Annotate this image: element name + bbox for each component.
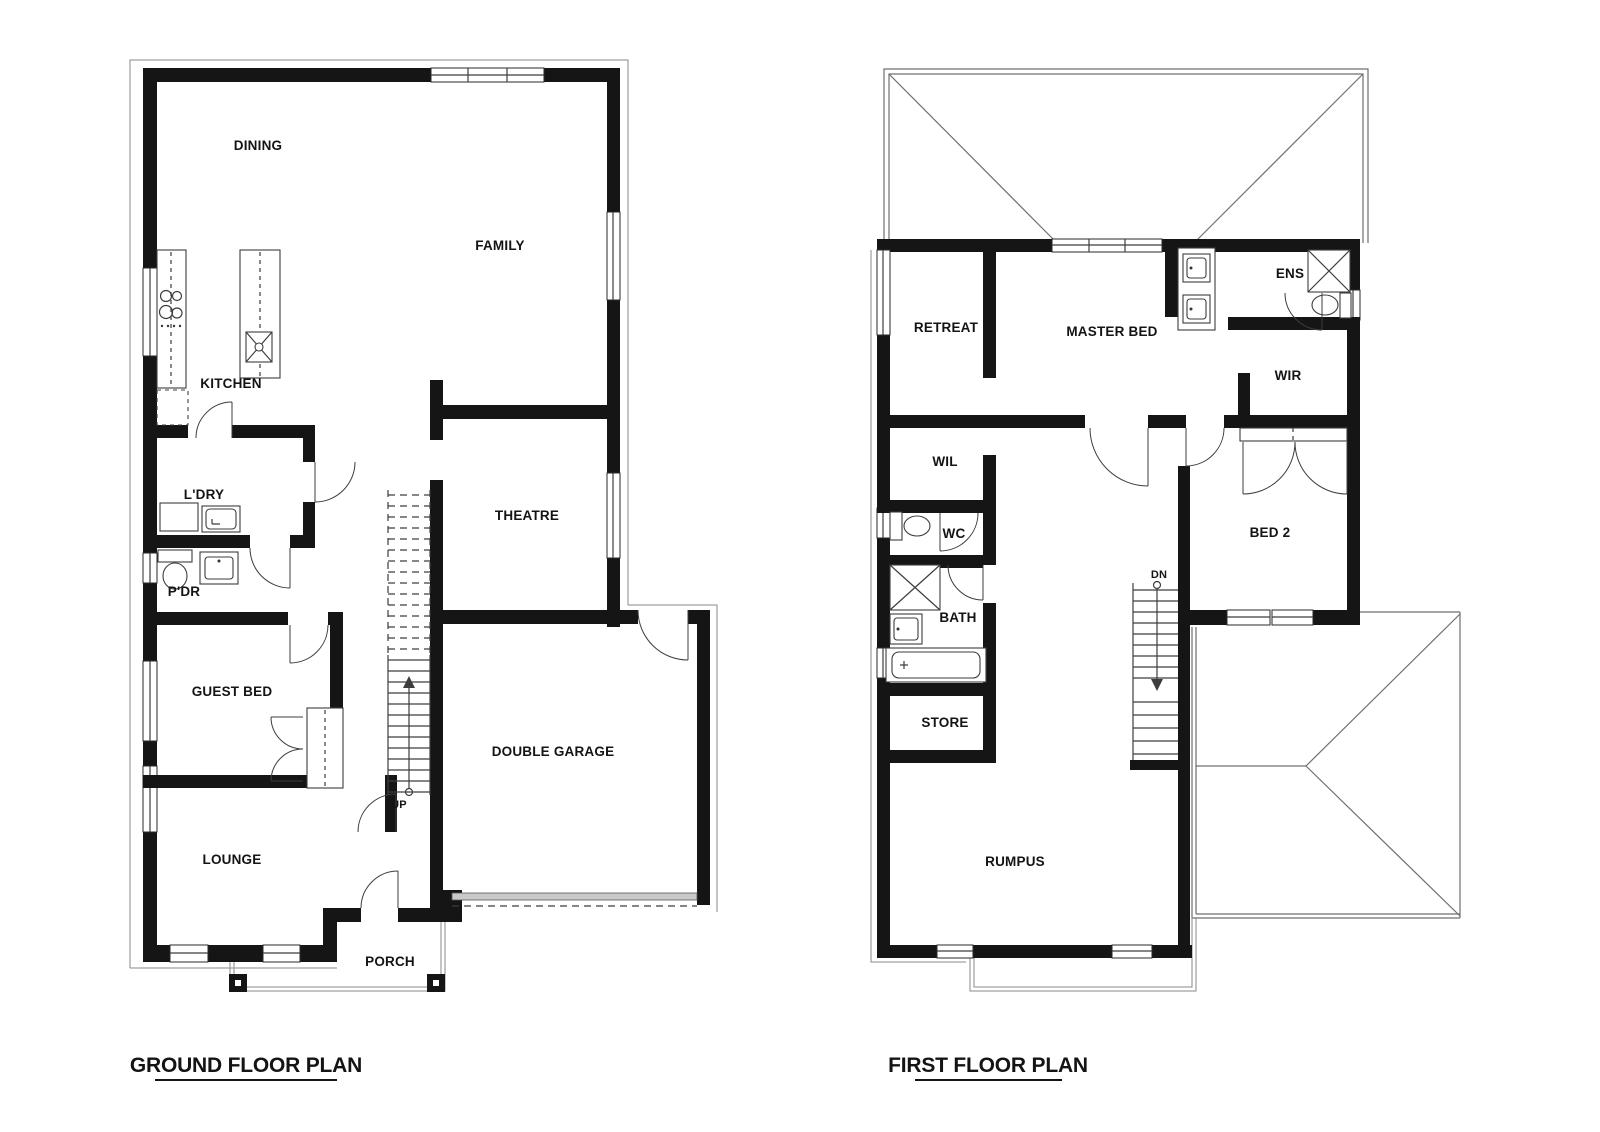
ground-floor-plan: UP DINING FAMILY KITCHEN L'DRY P'DR THEA…	[130, 60, 717, 1080]
first-floor-plan: DN RETREAT MASTER BED ENS WIR WIL WC BAT…	[871, 69, 1460, 1080]
room-label-retreat: RETREAT	[914, 320, 979, 335]
room-label-theatre: THEATRE	[495, 508, 559, 523]
laundry-trough-icon	[202, 506, 240, 532]
ground-interior-walls	[143, 380, 620, 908]
shower-icon	[890, 565, 940, 610]
room-label-guest-bed: GUEST BED	[192, 684, 273, 699]
first-doors	[940, 293, 1322, 600]
first-windows	[877, 239, 1360, 958]
room-label-rumpus: RUMPUS	[985, 854, 1045, 869]
ground-floor-title: GROUND FLOOR PLAN	[130, 1054, 362, 1080]
room-label-dining: DINING	[234, 138, 282, 153]
room-label-bath: BATH	[939, 610, 976, 625]
vanity-basin-icon	[890, 614, 922, 644]
room-label-family: FAMILY	[475, 238, 524, 253]
bathtub-icon	[886, 648, 986, 682]
room-label-garage: DOUBLE GARAGE	[492, 744, 615, 759]
first-stairs: DN	[1133, 569, 1178, 760]
room-label-lounge: LOUNGE	[203, 852, 262, 867]
room-label-store: STORE	[921, 715, 968, 730]
vanity-basin-icon	[1183, 254, 1210, 282]
toilet-icon	[890, 512, 930, 540]
room-label-powder: P'DR	[168, 584, 201, 599]
first-interior-walls	[877, 239, 1360, 770]
first-floor-title-text: FIRST FLOOR PLAN	[888, 1054, 1088, 1077]
room-label-wir: WIR	[1275, 368, 1302, 383]
vanity-basin-icon	[200, 552, 238, 584]
room-label-wil: WIL	[932, 454, 957, 469]
lower-roof-outline	[1192, 612, 1460, 918]
upper-roof-outline	[884, 69, 1368, 243]
vanity-basin-icon	[1183, 295, 1210, 323]
room-label-master-bed: MASTER BED	[1066, 324, 1157, 339]
room-label-wc: WC	[943, 526, 966, 541]
room-label-laundry: L'DRY	[184, 487, 224, 502]
ground-floor-title-text: GROUND FLOOR PLAN	[130, 1054, 362, 1077]
garage-door	[452, 893, 697, 906]
wc-bath-fixtures	[886, 512, 986, 682]
room-label-porch: PORCH	[365, 954, 415, 969]
floor-plan-drawing: UP DINING FAMILY KITCHEN L'DRY P'DR THEA…	[0, 0, 1600, 1132]
room-label-ensuite: ENS	[1276, 266, 1304, 281]
stair-down-label: DN	[1151, 569, 1167, 581]
island-sink-icon	[246, 332, 272, 362]
room-label-bed2: BED 2	[1250, 525, 1291, 540]
ground-stairs: UP	[388, 490, 430, 811]
porch-post-icon	[427, 974, 445, 992]
room-label-kitchen: KITCHEN	[200, 376, 261, 391]
floor-plan-sheet: UP DINING FAMILY KITCHEN L'DRY P'DR THEA…	[0, 0, 1600, 1132]
toilet-icon	[1312, 293, 1351, 318]
bed2-robe	[1240, 428, 1347, 494]
stair-up-label: UP	[391, 799, 407, 811]
shower-icon	[1308, 250, 1350, 292]
porch-post-icon	[229, 974, 247, 992]
kitchen-fixtures	[157, 250, 280, 425]
laundry-fixtures	[160, 503, 240, 532]
first-floor-title: FIRST FLOOR PLAN	[888, 1054, 1088, 1080]
first-exterior-walls	[877, 239, 1360, 958]
